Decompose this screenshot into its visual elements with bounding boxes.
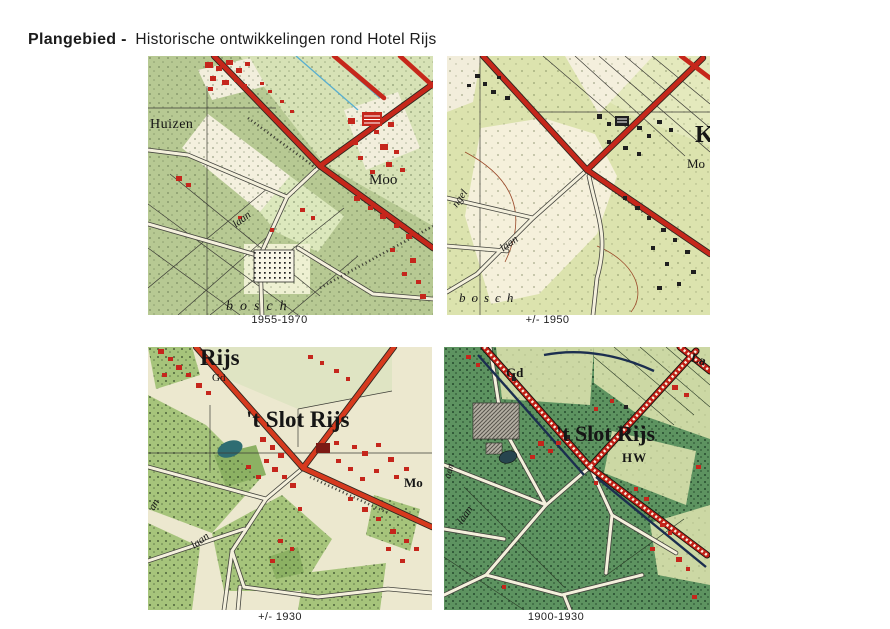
- map-image-1955-1970: Huizen Moo laan bosch: [148, 56, 433, 315]
- map-figure-1930: Rijs Gd 't Slot Rijs Mo laan an: [148, 347, 432, 610]
- map-caption-1900-1930: 1900-1930: [423, 611, 689, 623]
- map2-label-place-right: Mo: [687, 156, 705, 171]
- map2-label-forest: bosch: [459, 290, 519, 305]
- map-image-1930: Rijs Gd 't Slot Rijs Mo laan an: [148, 347, 432, 610]
- map-caption-1955-1970: 1955-1970: [137, 314, 422, 326]
- map1-label-settlement: Huizen: [150, 117, 193, 132]
- map3-label-parcel: Gd: [212, 372, 226, 384]
- map1-label-forest: bosch: [226, 299, 294, 314]
- map-figure-1955-1970: Huizen Moo laan bosch: [148, 56, 433, 315]
- map4-label-parcel: Gd: [506, 365, 524, 380]
- map2-label-corner-letter: K: [695, 122, 710, 148]
- map4-label-marker: HW: [622, 450, 647, 465]
- map-caption-1950: +/- 1950: [416, 314, 679, 326]
- map3-label-place-top: Rijs: [200, 347, 240, 370]
- page-title: Plangebied - Historische ontwikkelingen …: [28, 31, 437, 49]
- page-title-lead: Plangebied -: [28, 31, 127, 48]
- map-figure-1900-1930: Gd 't Slot Rijs HW laan aan La: [444, 347, 710, 610]
- slide-canvas: Plangebied - Historische ontwikkelingen …: [0, 0, 890, 629]
- map1-label-place-right: Moo: [369, 172, 397, 188]
- map4-label-estate: 't Slot Rijs: [556, 421, 655, 446]
- map-image-1900-1930: Gd 't Slot Rijs HW laan aan La: [444, 347, 710, 610]
- map-caption-1930: +/- 1930: [138, 611, 422, 623]
- map3-label-estate: 't Slot Rijs: [246, 407, 350, 432]
- map3-label-place-right: Mo: [404, 475, 423, 490]
- page-title-rest: Historische ontwikkelingen rond Hotel Ri…: [135, 31, 436, 48]
- map-figure-1950: ngel laan bosch Mo K: [447, 56, 710, 315]
- map-image-1950: ngel laan bosch Mo K: [447, 56, 710, 315]
